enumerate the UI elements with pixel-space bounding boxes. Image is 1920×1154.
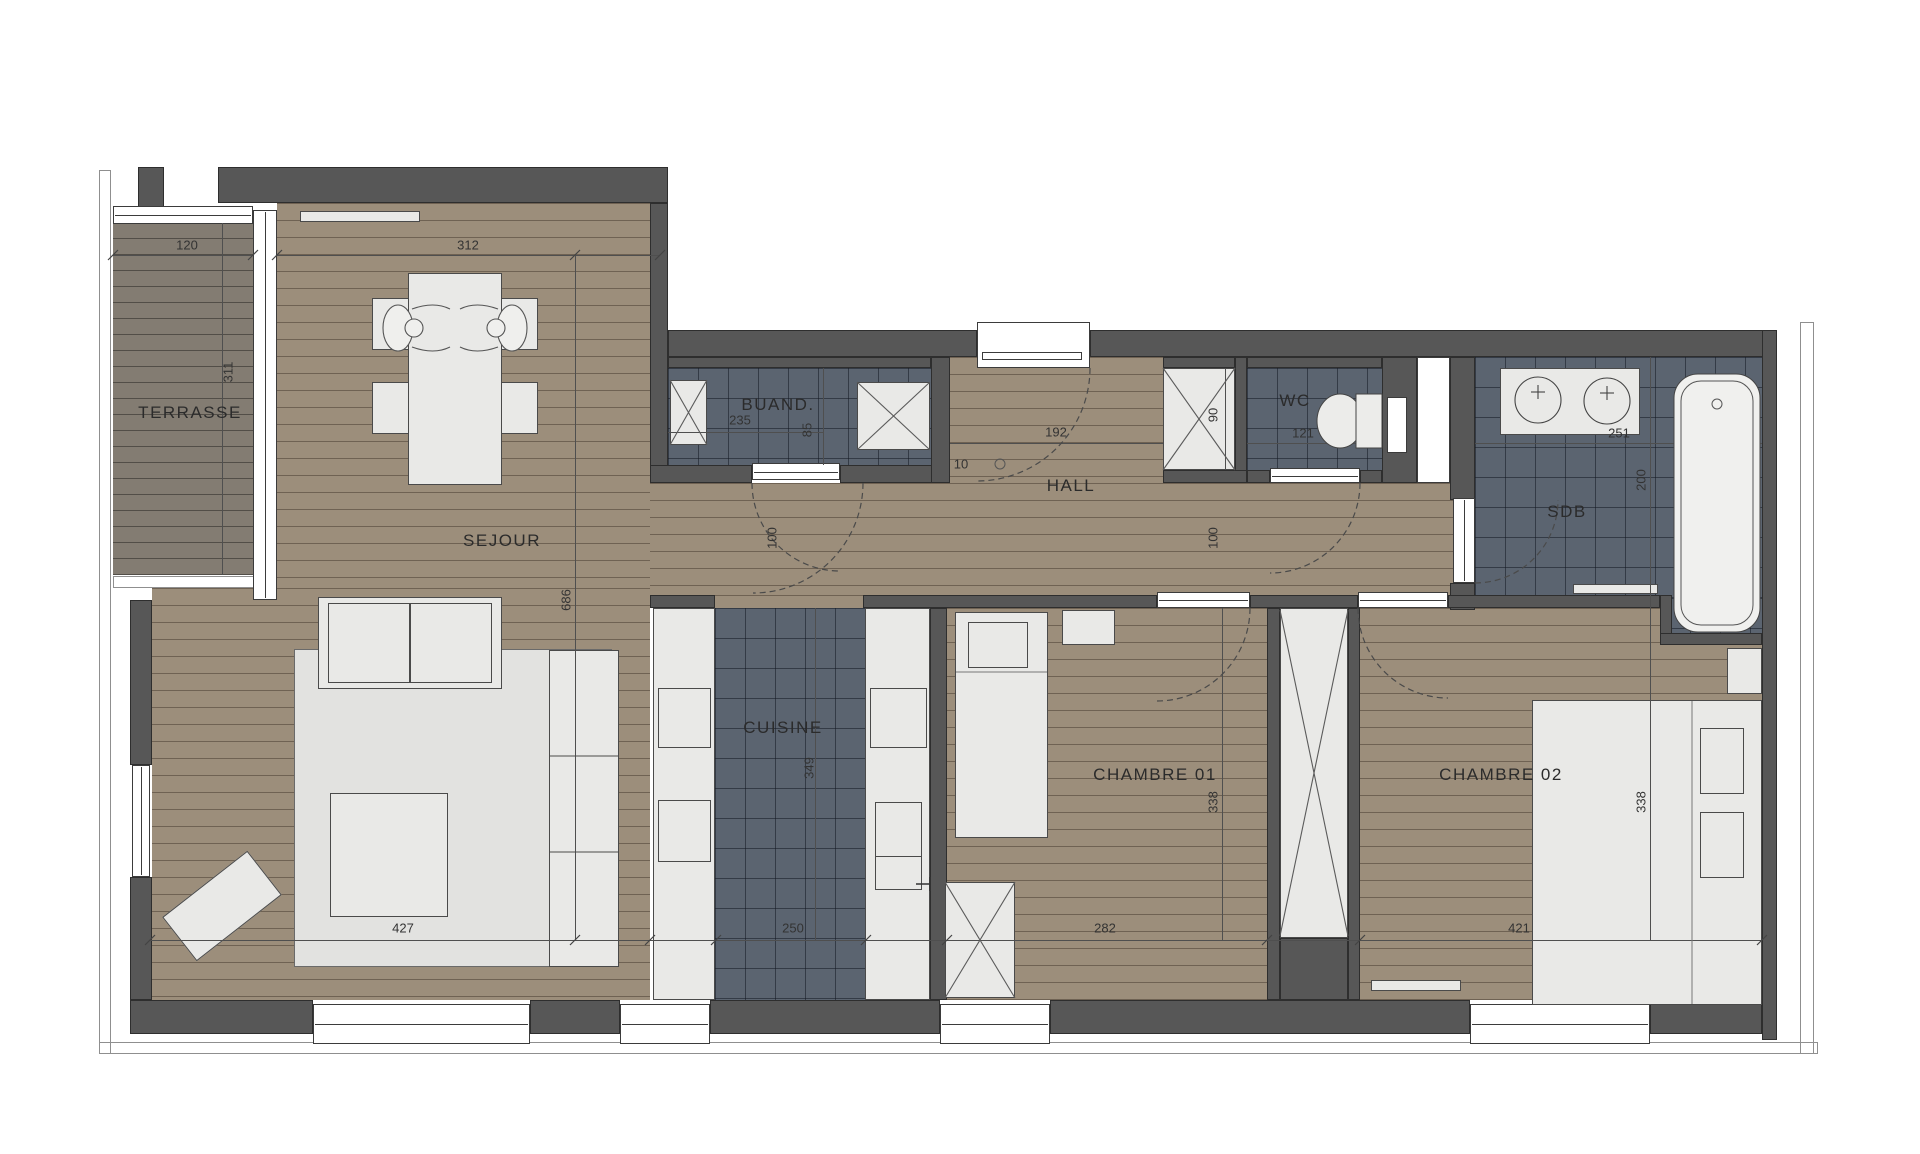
room-label: CHAMBRE 01 [1093,765,1217,785]
labels-layer: TERRASSESEJOURBUAND.HALLWCSDBCUISINECHAM… [0,0,1920,1154]
dimension-label: 349 [802,757,817,779]
dimension-label: 120 [176,238,198,253]
room-label: HALL [1047,476,1096,496]
dimension-label: 235 [729,413,751,428]
room-label: SEJOUR [463,531,541,551]
dimension-label: 200 [1634,469,1649,491]
dimension-label: 85 [800,423,815,437]
dimension-label: 312 [457,238,479,253]
dimension-label: 311 [221,362,236,383]
dimension-label: 421 [1508,921,1530,936]
dimension-label: 427 [392,921,414,936]
dimension-label: 338 [1634,791,1649,813]
dimension-label: 100 [765,527,780,549]
dimension-label: 192 [1045,425,1067,440]
dimension-label: 10 [954,457,968,472]
dimension-label: 90 [1206,408,1221,422]
dimension-label: 250 [782,921,804,936]
dimension-label: 686 [559,589,574,611]
dimension-label: 251 [1608,426,1630,441]
dimension-label: 282 [1094,921,1116,936]
floor-plan-canvas: TERRASSESEJOURBUAND.HALLWCSDBCUISINECHAM… [0,0,1920,1154]
room-label: WC [1279,391,1310,411]
room-label: TERRASSE [138,403,242,423]
room-label: CUISINE [743,718,822,738]
dimension-label: 338 [1206,791,1221,813]
dimension-label: 100 [1206,527,1221,549]
room-label: SDB [1547,502,1586,522]
room-label: BUAND. [741,395,814,415]
dimension-label: 121 [1292,426,1314,441]
room-label: CHAMBRE 02 [1439,765,1563,785]
